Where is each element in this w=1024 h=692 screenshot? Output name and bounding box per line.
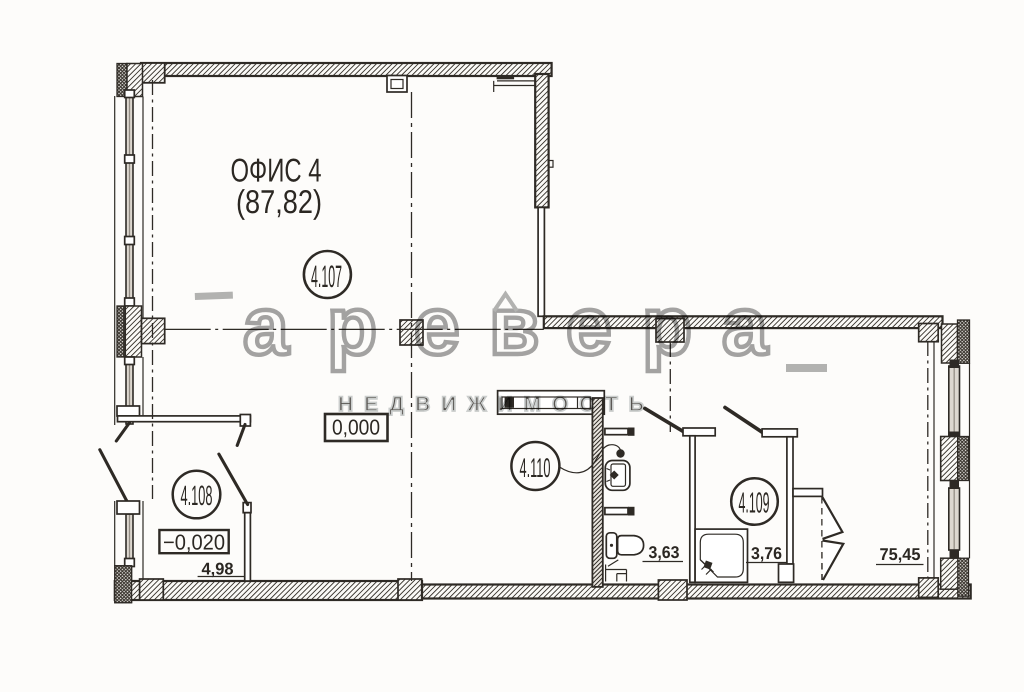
svg-text:−0,020: −0,020 — [163, 531, 225, 555]
svg-text:3,63: 3,63 — [649, 543, 680, 562]
svg-text:3,76: 3,76 — [751, 544, 782, 563]
svg-text:а: а — [243, 281, 290, 372]
svg-text:4.108: 4.108 — [181, 480, 213, 511]
svg-text:НЕДВИЖИМОСТЬ: НЕДВИЖИМОСТЬ — [338, 393, 655, 416]
svg-text:в: в — [489, 281, 539, 372]
svg-text:4.110: 4.110 — [520, 453, 551, 483]
svg-text:(87,82): (87,82) — [236, 183, 322, 220]
svg-text:0,000: 0,000 — [332, 416, 380, 440]
svg-text:4,98: 4,98 — [202, 560, 234, 579]
svg-text:4.109: 4.109 — [739, 488, 770, 520]
svg-text:75,45: 75,45 — [880, 545, 921, 564]
svg-text:а: а — [722, 281, 769, 372]
svg-text:р: р — [327, 281, 377, 372]
svg-text:р: р — [642, 281, 692, 372]
svg-text:е: е — [566, 281, 612, 372]
svg-text:е: е — [414, 281, 460, 372]
